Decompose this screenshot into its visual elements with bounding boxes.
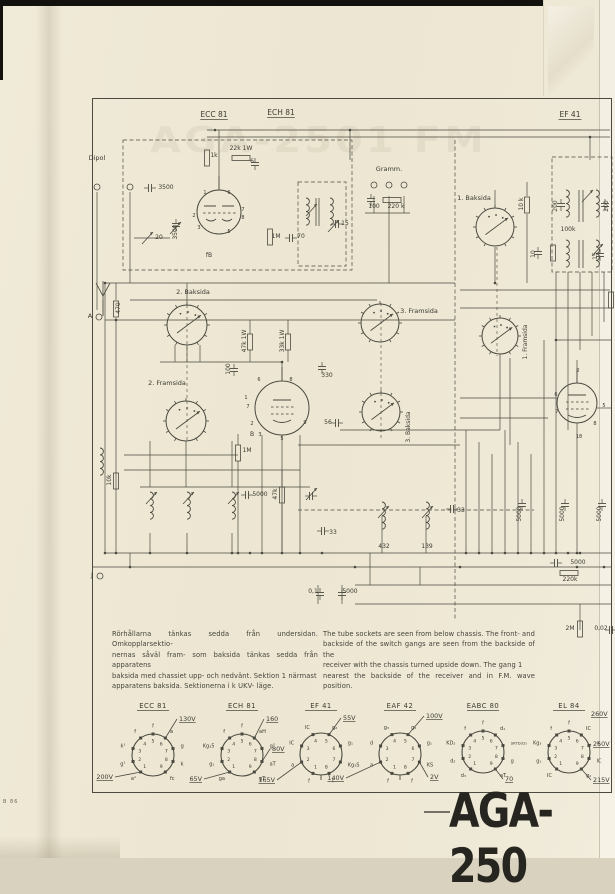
schematic-label: 22k 1W (230, 145, 253, 152)
socket-title: ECC 81 (139, 702, 167, 710)
svg-text:7: 7 (332, 757, 335, 763)
circuit-schematic: ECC 81ECH 81EF 41DipolGramm.100220 k1k22… (0, 0, 615, 858)
schematic-label: 220 k (388, 203, 405, 210)
pin-label: f (241, 724, 243, 730)
switch-gang (473, 205, 517, 246)
svg-text:6: 6 (332, 746, 335, 752)
schematic-label: 6 (250, 158, 254, 165)
schematic-label: 432 (378, 543, 390, 550)
svg-text:2: 2 (307, 757, 310, 763)
socket-title: EL 84 (558, 702, 579, 710)
schematic-label: Dipol (89, 154, 106, 162)
svg-text:4: 4 (143, 741, 146, 747)
component-symbols (94, 150, 615, 637)
note-swedish: Rörhållarna tänkas sedda från undersidan… (112, 629, 318, 691)
schematic-label: 15 (341, 220, 349, 227)
schematic-label: 100 (225, 363, 232, 375)
pin-label: f (134, 729, 136, 735)
tube-symbol (197, 176, 241, 234)
svg-text:5: 5 (482, 736, 485, 742)
schematic-label: 33k 1W (279, 330, 286, 353)
pin-label: aT (270, 762, 277, 768)
schematic-label: 8 (593, 421, 596, 427)
svg-text:2: 2 (554, 754, 557, 760)
schematic-label: 3 (258, 432, 261, 438)
svg-text:8: 8 (325, 765, 328, 771)
schematic-label: 470 (115, 302, 122, 314)
svg-text:4: 4 (232, 741, 235, 747)
voltage-label: 65V (189, 775, 202, 783)
model-number: AGA-250 (449, 784, 588, 894)
schematic-label: 33 (457, 507, 465, 514)
schematic-label: 100 (368, 203, 380, 210)
pin-label: IC (305, 725, 310, 731)
schematic-label: 2. Framsida (148, 379, 186, 387)
pin-label: k (181, 762, 184, 768)
voltage-label: 55V (343, 714, 356, 722)
schematic-label: 6 (554, 392, 557, 398)
schematic-label: 33 (329, 529, 337, 536)
schematic-label: 6 (227, 190, 230, 196)
pin-label: IC (597, 759, 602, 765)
pin-label: d₂ (450, 759, 455, 765)
voltage-label: 2V (430, 773, 439, 781)
svg-text:3: 3 (468, 745, 471, 751)
pin-label: Kg₃ (533, 741, 541, 747)
voltage-label: 250V (593, 740, 610, 748)
socket-title: EAF 42 (387, 702, 414, 710)
switch-gang (358, 301, 402, 342)
pin-label: f (550, 726, 552, 732)
pin-label: g₃ (384, 725, 389, 731)
schematic-label: 5 (280, 436, 283, 442)
pin-label: f (411, 778, 413, 784)
pin-label: d₁ (500, 726, 505, 732)
schematic-label: 5 (227, 229, 230, 235)
schematic-label: 0,1 (308, 588, 318, 595)
pin-label: IC (547, 773, 552, 779)
schematic-label: 1M (272, 233, 281, 240)
schematic-label: B (250, 431, 254, 438)
pin-label: f (568, 721, 570, 727)
schematic-label: 100k (561, 226, 576, 233)
svg-text:7: 7 (581, 745, 584, 751)
svg-text:5: 5 (152, 739, 155, 745)
schematic-label: 10k (106, 474, 113, 486)
voltage-label: 260V (591, 710, 608, 718)
tube-symbol (255, 367, 309, 435)
schematic-label: 15 (592, 252, 599, 260)
svg-text:3: 3 (138, 748, 141, 754)
svg-text:3: 3 (554, 745, 557, 751)
pin-label: KD₂ (446, 741, 455, 747)
pin-label: Kg₃S (348, 763, 360, 769)
schematic-label: 1M (243, 447, 252, 454)
schematic-label: 10 (530, 250, 537, 258)
voltage-label: 215V (593, 776, 610, 784)
schematic-label: 200 (552, 200, 559, 212)
voltage-label: 80V (272, 745, 285, 753)
schematic-label: 6 (257, 377, 260, 383)
svg-text:7: 7 (411, 757, 414, 763)
schematic-label: 8 (241, 215, 244, 221)
schematic-label: 18 (576, 434, 582, 440)
svg-text:1: 1 (559, 761, 562, 767)
svg-text:3: 3 (227, 748, 230, 754)
schematic-label: 1 (244, 395, 247, 401)
schematic-label: 47k (272, 488, 279, 500)
schematic-label: 139 (421, 543, 433, 550)
schematic-label: 2 (576, 368, 579, 374)
pin-label: g₁ (427, 741, 432, 747)
pin-label: d (370, 741, 373, 747)
schematic-label: 1. Baksida (457, 194, 491, 202)
socket-title: EABC 80 (467, 702, 500, 710)
svg-text:6: 6 (249, 741, 252, 747)
svg-text:8: 8 (254, 757, 257, 763)
pin-label: Kg₃5 (203, 744, 215, 750)
pin-label: g₁ (348, 741, 353, 747)
schematic-label: Gramm. (376, 165, 402, 173)
schematic-label: EF 41 (560, 110, 581, 119)
section-dividers (123, 140, 612, 620)
tube-socket-ech81: ECH 811ga2g₁3Kg₃54f5f6aH7g³8aT9gT16080V6… (189, 702, 285, 783)
schematic-label: 3 (197, 225, 200, 231)
svg-text:5: 5 (241, 739, 244, 745)
pin-label: g¹ (120, 762, 125, 768)
pin-label: KS (427, 763, 433, 769)
svg-text:4: 4 (473, 738, 476, 744)
svg-text:3: 3 (386, 746, 389, 752)
pin-label: f (482, 721, 484, 727)
pin-label: aH (259, 729, 266, 735)
svg-text:3: 3 (307, 746, 310, 752)
pin-label: SKTD₁D₃ (511, 741, 528, 746)
pin-label: k¹ (121, 744, 126, 750)
svg-text:2: 2 (386, 757, 389, 763)
tube-symbol (557, 369, 597, 423)
schematic-label: 9 (303, 420, 306, 426)
schematic-label: 5000 (596, 506, 603, 521)
voltage-label: 130V (179, 715, 196, 723)
tube-socket-diagrams: ECC 811a¹2g¹3k¹4f5f6a7g8k9fc130V200VECH … (96, 702, 610, 784)
svg-text:2: 2 (468, 754, 471, 760)
switch-gang (163, 398, 209, 441)
svg-text:2: 2 (138, 757, 141, 763)
schematic-label: 5000 (252, 491, 267, 498)
svg-text:6: 6 (160, 741, 163, 747)
svg-text:8: 8 (165, 757, 168, 763)
svg-text:1: 1 (473, 761, 476, 767)
schematic-label: A (88, 312, 93, 320)
schematic-label: 3500 (172, 224, 179, 239)
schematic-label: 47k 1W (241, 330, 248, 353)
svg-text:1: 1 (232, 764, 235, 770)
pin-label: f (387, 778, 389, 784)
switch-gang (479, 315, 521, 354)
svg-text:9: 9 (490, 761, 493, 767)
schematic-label: 5000 (342, 588, 357, 595)
schematic-label: 10 k (518, 197, 525, 211)
schematic-label: 2 (250, 421, 253, 427)
svg-text:8: 8 (404, 765, 407, 771)
svg-text:4: 4 (559, 738, 562, 744)
svg-text:4: 4 (314, 739, 317, 745)
schematic-label: 70 (297, 233, 305, 240)
pin-label: IC (289, 741, 294, 747)
schematic-label: fB (206, 252, 212, 259)
svg-text:4: 4 (393, 739, 396, 745)
pin-label: f (223, 729, 225, 735)
schematic-label: 5000 (516, 506, 523, 521)
schematic-label: 5000 (559, 506, 566, 521)
pin-label: fc (170, 776, 175, 782)
svg-text:9: 9 (160, 764, 163, 770)
svg-text:8: 8 (581, 754, 584, 760)
schematic-label: 1k (210, 152, 218, 159)
voltage-label: 100V (426, 712, 443, 720)
svg-text:9: 9 (576, 761, 579, 767)
schematic-label: 2. Baksida (176, 288, 210, 296)
voltage-label: 70 (505, 775, 513, 783)
pin-label: g₂ (586, 773, 591, 779)
schematic-label: ECC 81 (200, 110, 227, 119)
pin-label: f (308, 778, 310, 784)
schematic-label: ECH 81 (267, 108, 295, 117)
scanned-page: AGA-2501 FM ECC 81ECH 81EF 41DipolGramm.… (0, 0, 615, 858)
schematic-label: 3500 (158, 184, 173, 191)
socket-title: ECH 81 (228, 702, 256, 710)
schematic-label: 7 (555, 409, 558, 415)
svg-text:7: 7 (165, 748, 168, 754)
schematic-label: J (90, 571, 93, 579)
pin-label: d₃ (461, 773, 466, 779)
schematic-label: 1 (203, 190, 206, 196)
schematic-label: 0,02 (594, 625, 608, 632)
voltage-label: 200V (96, 773, 113, 781)
svg-text:8: 8 (495, 754, 498, 760)
svg-text:1: 1 (143, 764, 146, 770)
schematic-label: 200 (603, 200, 610, 212)
print-code: B 86 (3, 799, 18, 805)
pin-label: IC (586, 726, 591, 732)
tube-socket-eabc80: EABC 801d₃2d₂3KD₂4f5f6d₁7SKTD₁D₃8g9aT70 (446, 702, 527, 783)
schematic-label: 2 (192, 213, 195, 219)
schematic-label: 5 (602, 403, 605, 409)
socket-title: EF 41 (310, 702, 332, 710)
voltage-label: 160 (266, 715, 278, 723)
schematic-label: 1. Framsida (522, 324, 529, 359)
svg-text:1: 1 (314, 765, 317, 771)
voltage-label: 140V (327, 774, 344, 782)
pin-label: f (152, 724, 154, 730)
pin-label: ga (219, 776, 225, 782)
svg-text:1: 1 (393, 765, 396, 771)
note-english: The tube sockets are seen from below cha… (323, 629, 535, 691)
schematic-label: 2M (566, 625, 575, 632)
pin-label: g (511, 759, 514, 765)
pin-label: g (181, 744, 184, 750)
pin-label: g₁ (536, 759, 541, 765)
schematic-label: 5000 (570, 559, 585, 566)
schematic-label: 3. Framsida (400, 307, 438, 315)
svg-text:7: 7 (254, 748, 257, 754)
schematic-label: 330 (321, 372, 333, 379)
schematic-label: 8 (289, 377, 292, 383)
schematic-label: 220k (563, 576, 578, 583)
svg-text:6: 6 (490, 738, 493, 744)
schematic-label: 20 (155, 234, 163, 241)
svg-text:9: 9 (249, 764, 252, 770)
svg-text:5: 5 (325, 739, 328, 745)
svg-text:7: 7 (495, 745, 498, 751)
pin-label: a¹ (131, 776, 136, 782)
svg-text:5: 5 (404, 739, 407, 745)
tube-socket-el84: EL 841IC2g₁3Kg₃4f5f6IC7a8IC9g₂250V215V26… (533, 702, 610, 784)
schematic-label: 7 (241, 207, 244, 213)
svg-text:5: 5 (568, 736, 571, 742)
pin-label: g₁ (209, 762, 214, 768)
tube-socket-ecc81: ECC 811a¹2g¹3k¹4f5f6a7g8k9fc130V200V (96, 702, 196, 782)
svg-text:6: 6 (411, 746, 414, 752)
pin-label: f (464, 726, 466, 732)
svg-text:6: 6 (576, 738, 579, 744)
svg-text:2: 2 (227, 757, 230, 763)
voltage-label: 165V (258, 776, 275, 784)
schematic-label: 3. Baksida (405, 411, 412, 443)
schematic-label: 7 (246, 404, 249, 410)
schematic-label: 56 (324, 419, 332, 426)
